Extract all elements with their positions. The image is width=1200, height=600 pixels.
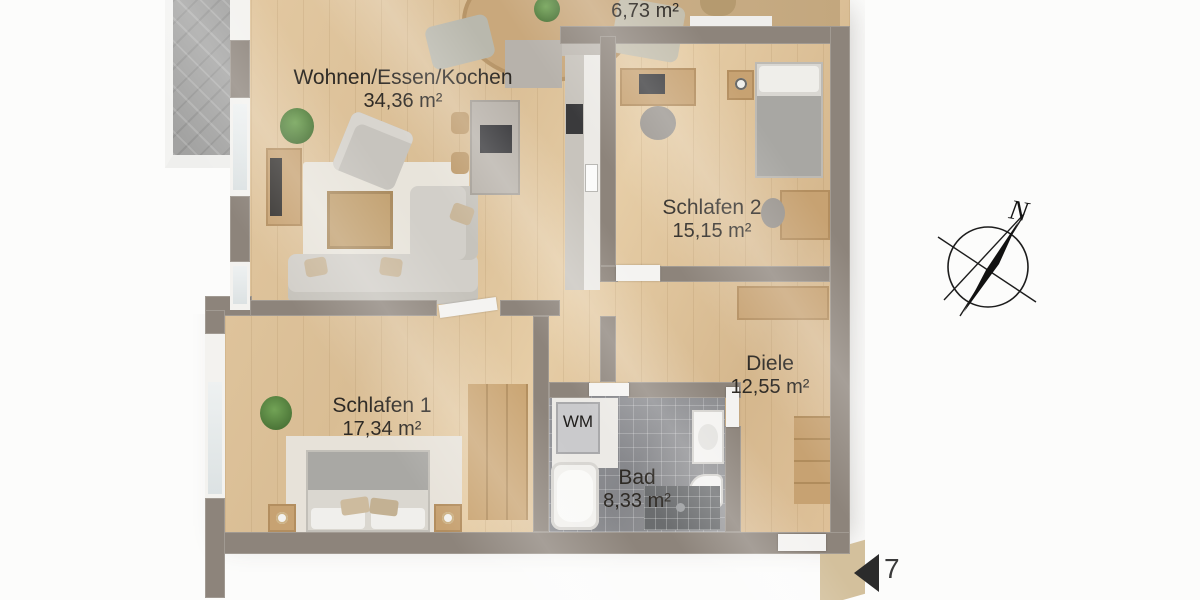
terrace-floor: [165, 0, 230, 168]
room-name: Bad: [603, 466, 671, 490]
lamp: [276, 512, 288, 524]
north-needle: [964, 222, 1018, 312]
desk: [780, 190, 830, 240]
desk-chair: [640, 106, 676, 140]
sofa-pillow: [379, 257, 403, 278]
balcony-door-threshold: [690, 16, 772, 26]
room-name: Diele: [731, 352, 810, 376]
alarm-clock: [735, 78, 747, 90]
kitchen-sink: [585, 164, 598, 192]
exterior-ground: [165, 150, 230, 314]
kitchen-cabinet: [505, 40, 562, 88]
plant: [260, 396, 292, 430]
wall-living-bedroom1: [250, 300, 437, 316]
wall-bath-hall: [725, 426, 741, 532]
wall-bath-top: [549, 382, 590, 398]
entrance-door: [778, 534, 826, 551]
door-bathroom: [589, 383, 629, 396]
room-area: 15,15 m²: [662, 220, 761, 243]
wardrobe: [468, 384, 528, 520]
room-label-bathroom: Bad 8,33 m²: [603, 466, 671, 513]
wall-bath-top: [628, 382, 741, 398]
bathtub-basin: [557, 470, 593, 522]
room-area: 12,55 m²: [731, 376, 810, 399]
desk-chair: [761, 198, 785, 228]
sink-basin: [698, 424, 718, 450]
tv: [270, 158, 282, 216]
room-area: 34,36 m²: [293, 90, 512, 113]
wall-left-segment: [230, 196, 250, 262]
room-label-bedroom1: Schlafen 1 17,34 m²: [332, 394, 431, 441]
accent-pillow: [369, 497, 399, 516]
hall-sideboard: [737, 286, 829, 320]
wall-bedroom1-bath: [533, 316, 549, 532]
shower-drain: [676, 503, 685, 512]
wall-kitchen-bedroom2: [600, 36, 616, 266]
room-name: Wohnen/Essen/Kochen: [293, 66, 512, 90]
pillow: [759, 66, 819, 92]
hall-cabinet: [794, 416, 830, 504]
room-label-living: Wohnen/Essen/Kochen 34,36 m²: [293, 66, 512, 113]
room-label-bedroom2: Schlafen 2 15,15 m²: [662, 196, 761, 243]
plant: [280, 108, 314, 144]
room-label-hall: Diele 12,55 m²: [731, 352, 810, 399]
unit-number: 7: [884, 553, 900, 585]
window-glass: [233, 266, 247, 304]
wall-hall-niche: [600, 316, 616, 382]
compass-north-label: N: [1006, 194, 1032, 228]
blanket: [757, 96, 821, 176]
wall-bedroom2-hall: [660, 266, 830, 282]
blanket: [308, 452, 428, 490]
window-glass: [233, 104, 247, 190]
washing-machine-label: WM: [558, 412, 598, 432]
wall-bottom: [205, 532, 850, 554]
sofa-pillow: [304, 256, 329, 278]
room-name: Schlafen 1: [332, 394, 431, 418]
wall-left-segment: [205, 498, 225, 598]
room-area: 6,73 m²: [611, 0, 679, 23]
wall-right: [830, 26, 850, 550]
wall-living-bedroom1: [500, 300, 560, 316]
compass-icon: N: [930, 190, 1050, 340]
room-label-balcony: 6,73 m²: [611, 0, 679, 23]
room-name: Schlafen 2: [662, 196, 761, 220]
entrance-arrow-icon: [854, 554, 879, 592]
coffee-table: [327, 191, 393, 249]
door-bedroom2: [616, 265, 660, 281]
room-area: 17,34 m²: [332, 418, 431, 441]
wall-left-segment: [230, 40, 250, 98]
laptop: [639, 74, 665, 94]
room-area: 8,33 m²: [603, 490, 671, 513]
apartment-plan: WM: [165, 0, 865, 600]
window-glass: [208, 382, 222, 494]
bar-stool: [451, 112, 469, 134]
bar-stool: [451, 152, 469, 174]
floor-plan-render: WM: [0, 0, 1200, 600]
lamp: [442, 512, 454, 524]
cooktop: [566, 104, 583, 134]
island-cooktop: [480, 125, 512, 153]
wall-left-segment: [205, 310, 225, 334]
